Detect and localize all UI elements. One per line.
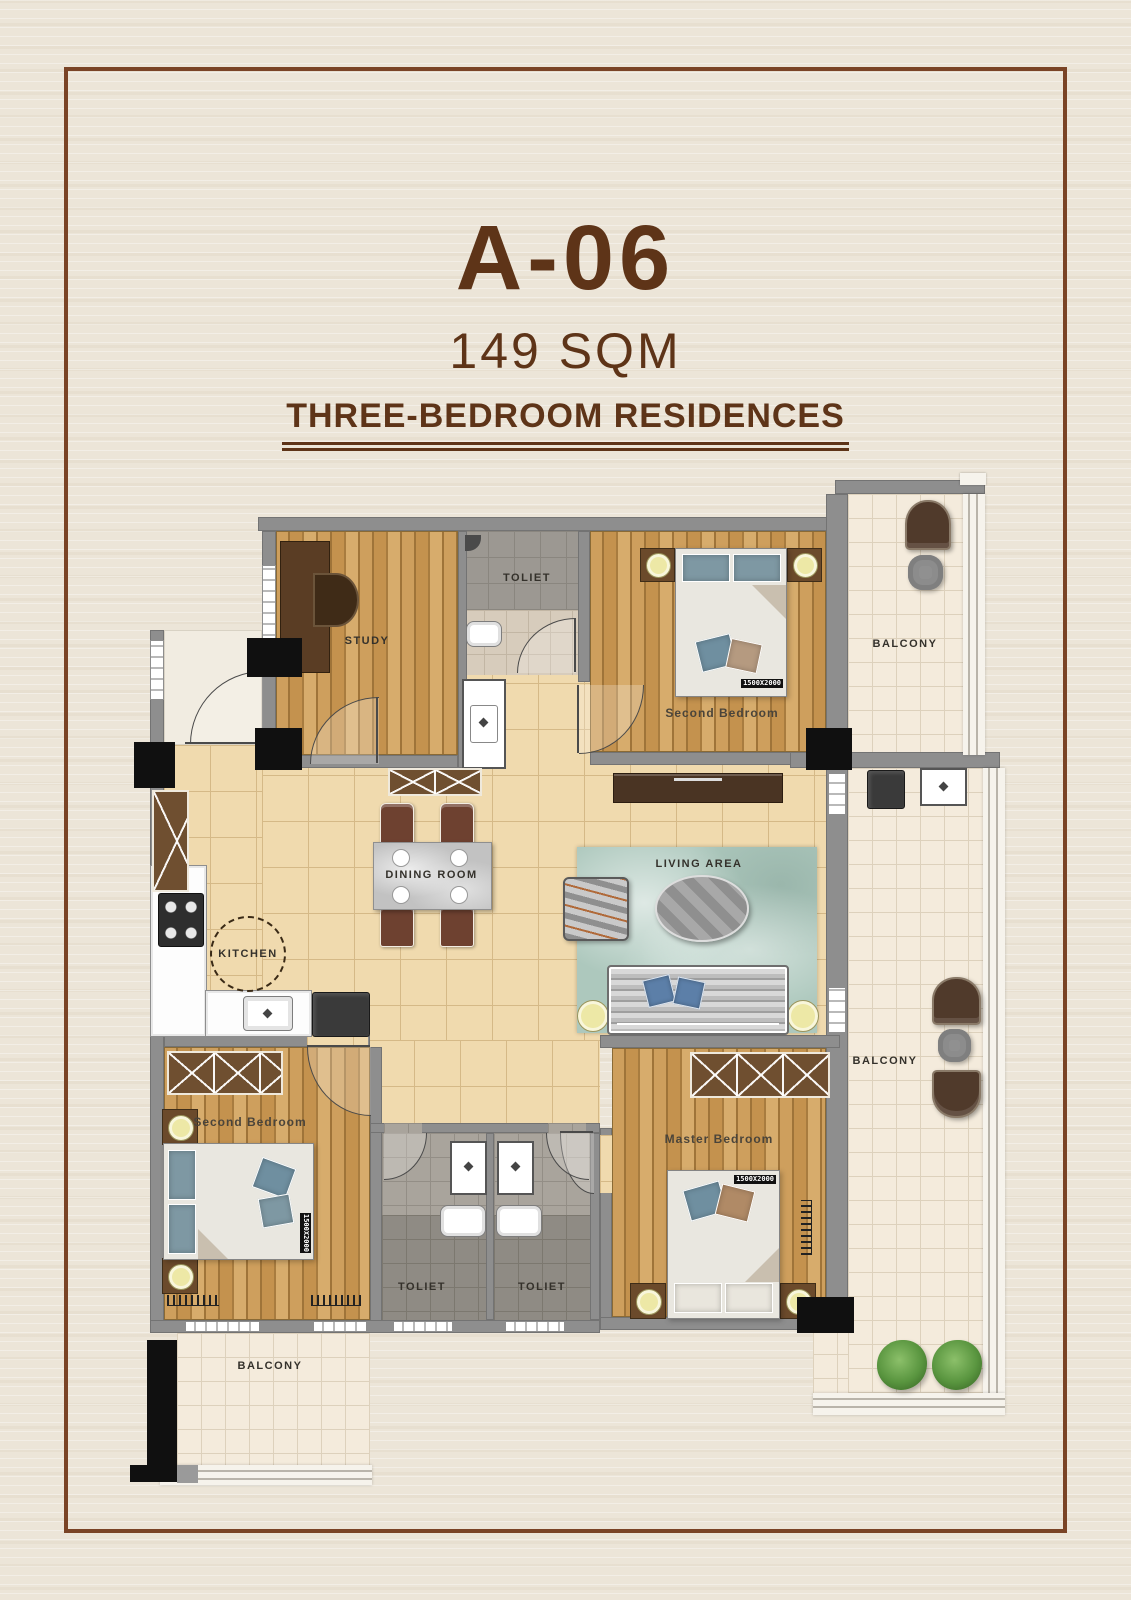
dining-chair (440, 905, 474, 947)
toilet-left-window (393, 1321, 453, 1332)
place-setting (450, 849, 468, 867)
master-bed: 1500X2000 (667, 1170, 780, 1319)
dining-chair (440, 803, 474, 845)
master-label: Master Bedroom (619, 1133, 819, 1146)
nightstand (630, 1283, 666, 1319)
toilet-left-wc (440, 1205, 486, 1237)
washing-machine (867, 770, 905, 809)
pillow (682, 554, 730, 582)
blanket-fold (745, 1248, 779, 1282)
basin-drain-icon (464, 1162, 474, 1172)
balcony-table (938, 1029, 971, 1062)
dining-chair (380, 803, 414, 845)
unit-number: A-06 (0, 212, 1131, 304)
bedroom-left-label: Second Bedroom (150, 1116, 350, 1129)
stove-icon (158, 893, 204, 947)
column (255, 728, 302, 770)
toilet-left-door-gap (384, 1123, 422, 1133)
toilet-right-label: TOLIET (492, 1281, 592, 1293)
balcony-chair (905, 500, 951, 550)
bedroom-top-bed: 1500X2000 (675, 548, 787, 697)
sofa-seat-line (617, 1023, 779, 1025)
entry-window (150, 640, 164, 700)
bedroom-left-window-2 (313, 1321, 367, 1332)
balcony-right-floor-ext (813, 1330, 848, 1393)
sofa (607, 965, 789, 1035)
balcony-chair (932, 1070, 981, 1118)
column (797, 1297, 854, 1333)
bedroom-top-label: Second Bedroom (622, 707, 822, 720)
pillow (168, 1204, 196, 1254)
toilet-left-label: TOLIET (372, 1281, 472, 1293)
study-door-leaf (376, 697, 378, 763)
bedroom-left-door-leaf (307, 1045, 370, 1047)
balcony-table (908, 555, 943, 590)
study-label: STUDY (317, 635, 417, 647)
basin-drain-icon (511, 1162, 521, 1172)
place-setting (450, 886, 468, 904)
column (130, 1465, 177, 1482)
page-background: A-06 149 SQM THREE-BEDROOM RESIDENCES (0, 0, 1131, 1600)
kitchen-label-circle: KITCHEN (210, 916, 286, 992)
bedroom-left-wardrobe (167, 1051, 283, 1095)
tv-icon (674, 778, 722, 781)
wall-toilet-top-right (578, 531, 590, 682)
pillow (168, 1150, 196, 1200)
laundry-sink (920, 768, 967, 806)
pillow (733, 554, 781, 582)
blanket-fold (752, 585, 786, 619)
radiator-coil (801, 1200, 812, 1255)
toilet-top-wc (466, 621, 502, 647)
armchair (563, 877, 629, 941)
nightstand (787, 548, 822, 582)
balcony-right-window-frame (983, 768, 1005, 1393)
lamp (636, 1289, 662, 1315)
bed-size-tag: 1500X2000 (734, 1175, 776, 1184)
balcony-right-label: BALCONY (835, 1055, 935, 1067)
lamp (168, 1264, 194, 1290)
cushion (715, 1183, 756, 1222)
corridor-floor (368, 1040, 600, 1135)
coffee-table (655, 875, 749, 942)
toilet-right-window (505, 1321, 565, 1332)
kitchen-appliance (312, 992, 370, 1037)
bedroom-left-bed: 1500X2000 (163, 1143, 314, 1260)
lamp (793, 553, 818, 578)
radiator-coil (167, 1295, 219, 1306)
master-wardrobe (690, 1052, 830, 1098)
side-table-lamp (577, 1000, 609, 1032)
balcony-chair (932, 977, 981, 1025)
balcony-bottom-floor (177, 1333, 370, 1465)
kitchen-tall-cabinet (152, 790, 189, 892)
floor-plan: STUDY TOLIET 1500X2000 Second Bedroom (125, 455, 1005, 1490)
cushion (258, 1193, 295, 1228)
column (806, 728, 852, 770)
living-balcony-door-2 (828, 987, 846, 1033)
toilet-top-label: TOLIET (477, 572, 577, 584)
master-door-gap (600, 1135, 612, 1193)
bed-size-tag: 1500X2000 (741, 679, 783, 688)
unit-area: 149 SQM (0, 326, 1131, 376)
column (134, 742, 175, 788)
nightstand (640, 548, 675, 582)
bed-size-tag: 1500X2000 (300, 1213, 311, 1253)
column (147, 1340, 177, 1482)
balcony-bottom-step (177, 1465, 198, 1483)
kitchen-sink (243, 996, 293, 1031)
cushion (252, 1157, 297, 1199)
place-setting (392, 849, 410, 867)
living-label: LIVING AREA (619, 858, 779, 870)
dining-chair (380, 905, 414, 947)
title-block: A-06 149 SQM THREE-BEDROOM RESIDENCES (0, 212, 1131, 445)
wall-master-top (600, 1035, 840, 1048)
sink-drain-icon (263, 1009, 273, 1019)
toilet-left-vanity (450, 1141, 487, 1195)
wall-top (258, 517, 845, 531)
dining-label: DINING ROOM (373, 869, 490, 881)
lamp (646, 553, 671, 578)
sofa-pillow (642, 974, 676, 1008)
toilet-right-vanity (497, 1141, 534, 1195)
entry-door-leaf (185, 742, 262, 744)
tv-console (613, 773, 783, 803)
hall-basin-cabinet (462, 679, 506, 769)
pillow (725, 1283, 773, 1313)
balcony-top-window-frame (963, 494, 985, 755)
kitchen-label: KITCHEN (218, 948, 277, 960)
hall-sideboard (388, 768, 482, 796)
blanket-fold (198, 1229, 228, 1259)
basin-drain-icon (939, 782, 949, 792)
pillow (674, 1283, 722, 1313)
balcony-top-label: BALCONY (855, 638, 955, 650)
side-table-lamp (787, 1000, 819, 1032)
wall-unit-right (826, 494, 848, 1330)
radiator-coil (311, 1295, 361, 1306)
living-balcony-door-1 (828, 773, 846, 815)
nightstand (162, 1258, 198, 1294)
study-chair (313, 573, 359, 627)
balcony-right-window-frame-bottom (813, 1393, 1005, 1415)
place-setting (392, 886, 410, 904)
balcony-bottom-label: BALCONY (220, 1360, 320, 1372)
sofa-pillow (672, 976, 705, 1009)
study-window (262, 565, 276, 645)
toilet-top-door-leaf (574, 618, 576, 672)
cushion (725, 638, 763, 674)
balcony-top-ledge (960, 473, 986, 485)
unit-type-subtitle: THREE-BEDROOM RESIDENCES (282, 398, 849, 445)
column (247, 638, 302, 677)
toilet-right-wc (496, 1205, 542, 1237)
bedroom-left-window-1 (185, 1321, 260, 1332)
bedroom-top-door-leaf (577, 685, 579, 753)
